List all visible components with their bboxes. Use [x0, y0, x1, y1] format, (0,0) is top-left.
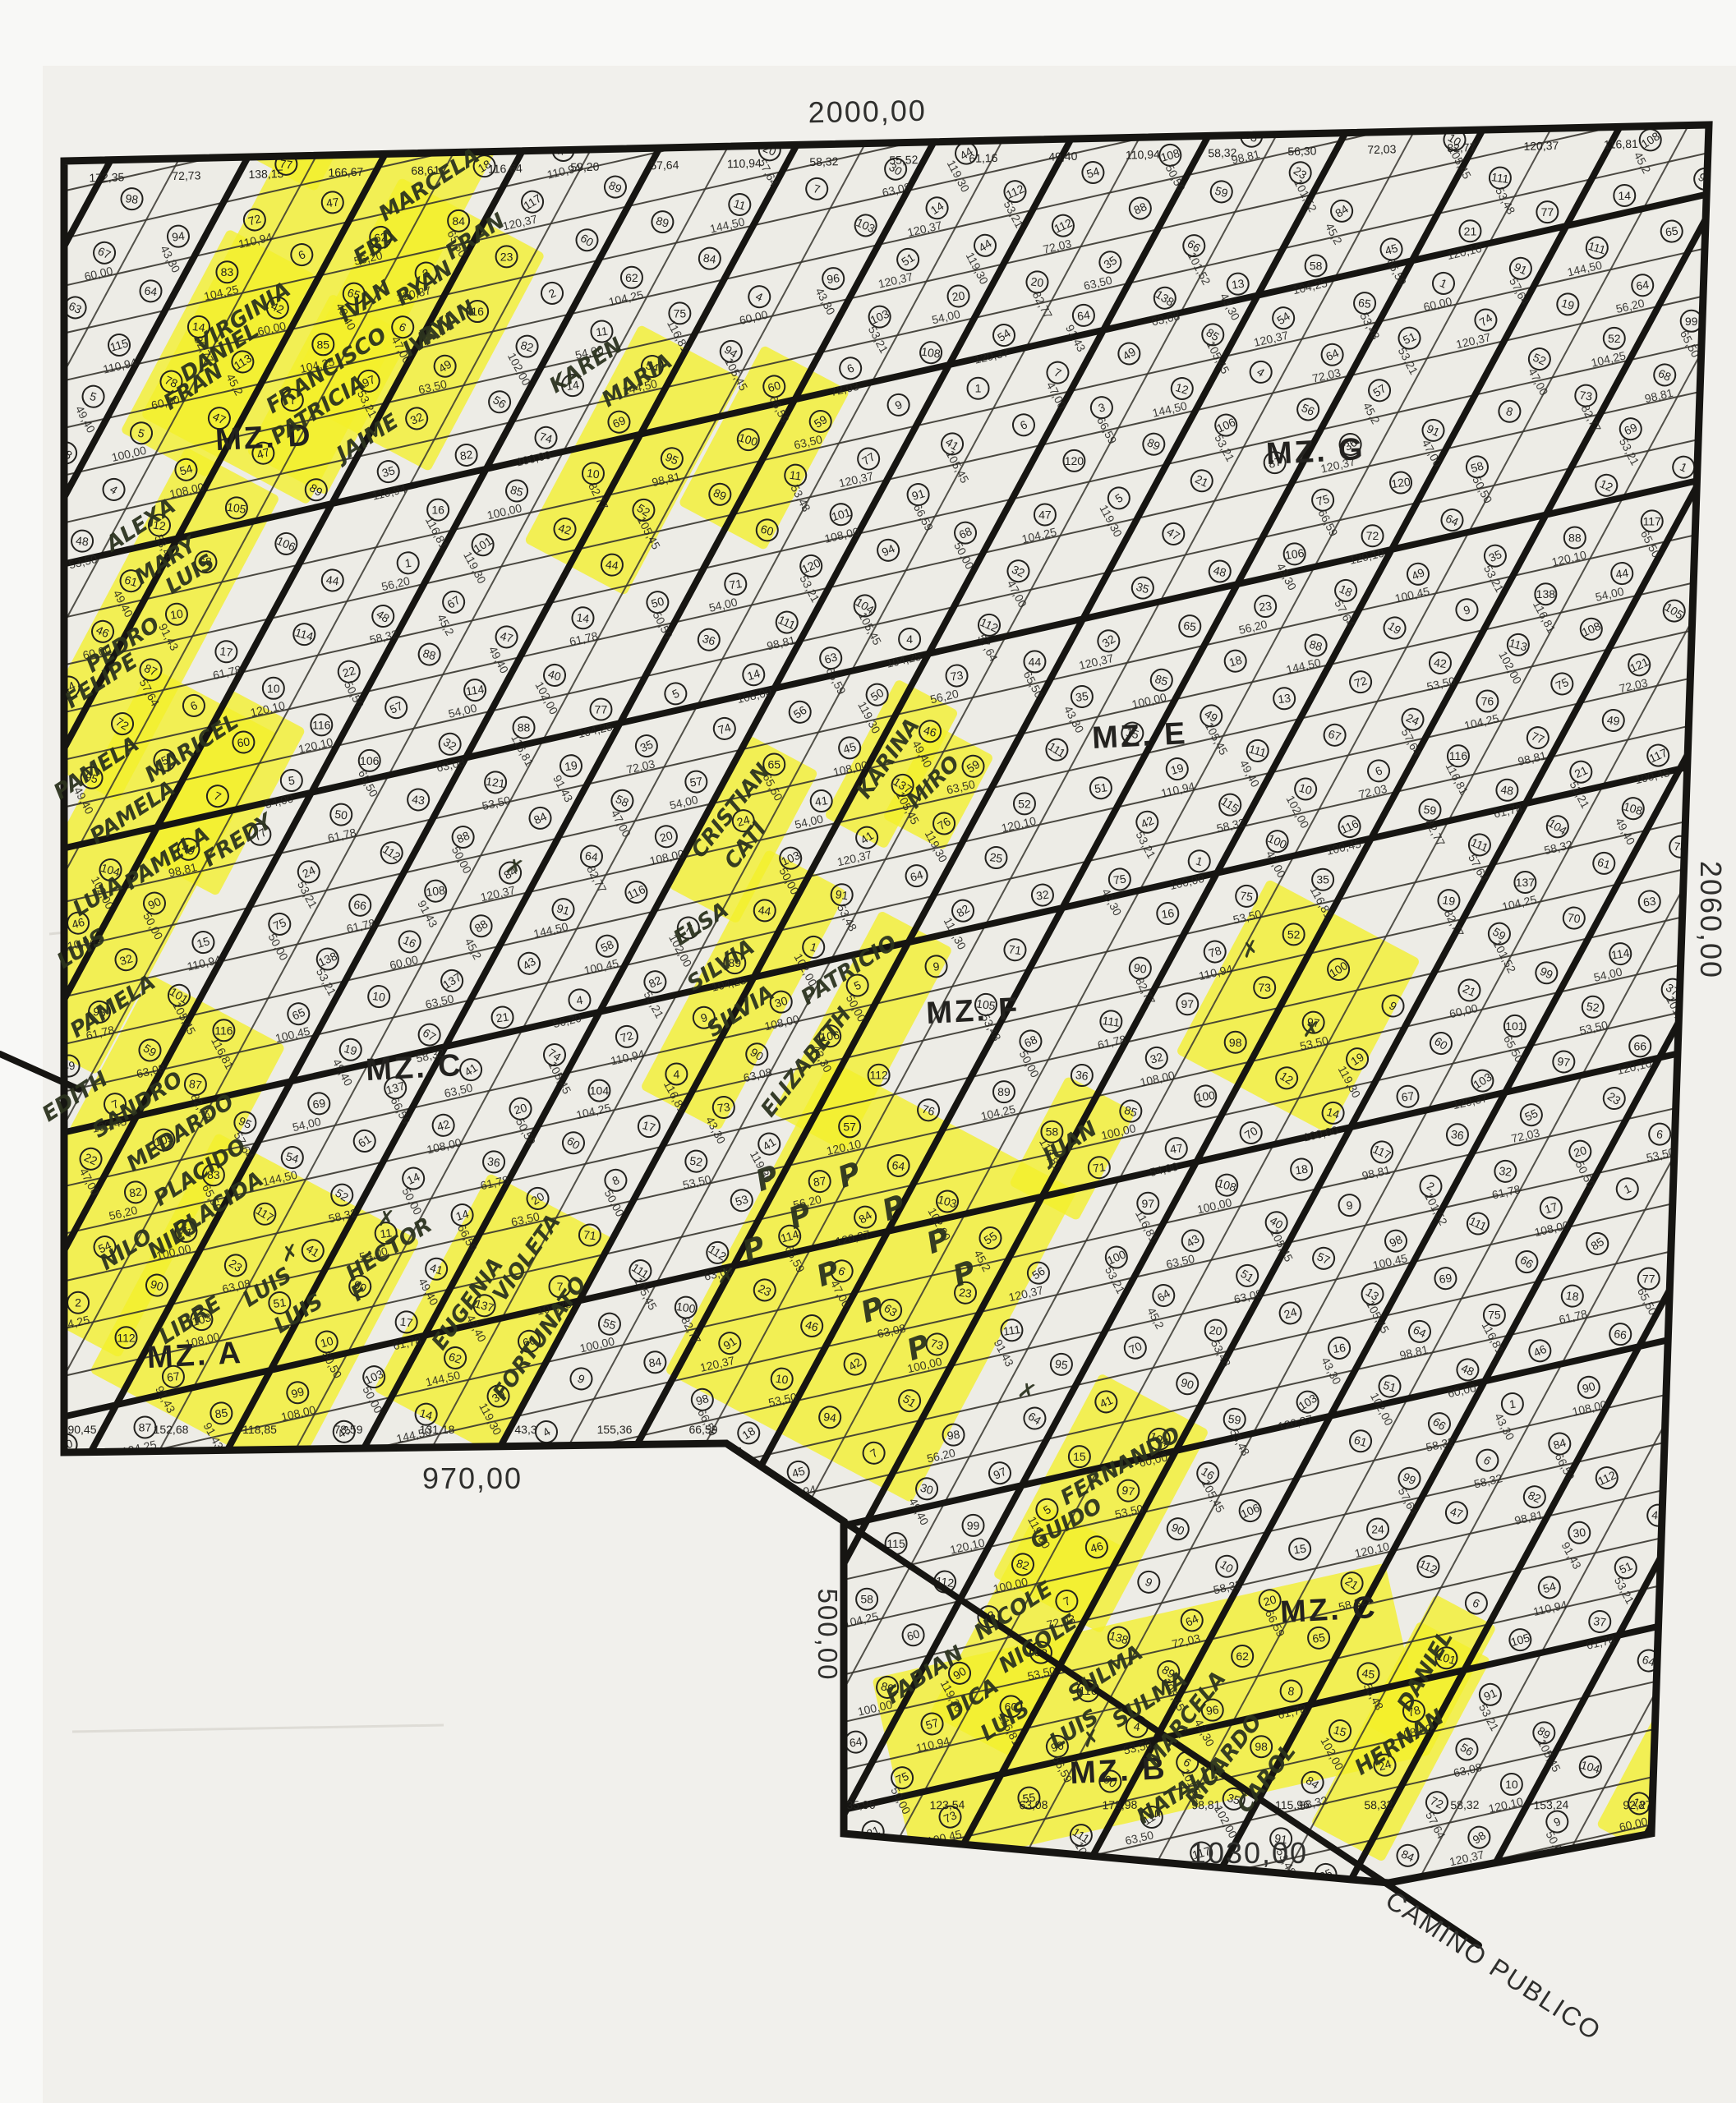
svg-text:71: 71: [728, 577, 743, 591]
svg-text:59,20: 59,20: [570, 160, 600, 174]
svg-text:4: 4: [906, 633, 913, 646]
x-mark: ✗: [377, 1207, 395, 1231]
svg-text:37: 37: [1592, 1614, 1607, 1629]
svg-text:82,77: 82,77: [1447, 140, 1476, 154]
block-label: MZ. C: [365, 1048, 463, 1088]
svg-text:10: 10: [1505, 1778, 1518, 1791]
svg-text:72,03: 72,03: [1367, 142, 1397, 156]
svg-text:73: 73: [1578, 389, 1593, 403]
svg-text:111: 111: [1490, 170, 1510, 186]
svg-text:57: 57: [689, 775, 704, 789]
svg-text:20: 20: [1030, 274, 1045, 289]
svg-text:44: 44: [1029, 655, 1042, 668]
svg-text:116: 116: [214, 1024, 233, 1037]
svg-text:84: 84: [648, 1355, 663, 1369]
svg-text:82: 82: [459, 448, 474, 462]
svg-text:65: 65: [1665, 224, 1679, 239]
svg-text:108: 108: [425, 883, 446, 899]
svg-text:106: 106: [360, 754, 380, 767]
svg-text:13: 13: [1277, 691, 1292, 706]
svg-text:110,94: 110,94: [1126, 148, 1160, 162]
svg-text:72: 72: [1366, 529, 1379, 542]
svg-text:4: 4: [673, 1067, 679, 1080]
svg-text:16: 16: [1160, 906, 1175, 921]
svg-text:66: 66: [1613, 1327, 1628, 1341]
svg-text:64: 64: [1635, 278, 1650, 292]
svg-text:137: 137: [1516, 876, 1536, 889]
x-mark: ✗: [1302, 1018, 1320, 1042]
dimension-label: 970,00: [422, 1461, 523, 1495]
svg-text:58,32: 58,32: [1450, 1798, 1480, 1812]
svg-text:96: 96: [826, 271, 840, 286]
svg-text:104: 104: [590, 1084, 610, 1098]
svg-text:114: 114: [1610, 946, 1631, 962]
svg-text:106: 106: [1284, 546, 1305, 562]
svg-text:24: 24: [1371, 1522, 1384, 1535]
svg-text:100: 100: [1195, 1088, 1217, 1104]
svg-text:101: 101: [1505, 1019, 1525, 1033]
svg-text:72,73: 72,73: [172, 168, 201, 182]
block-label: MZ. E: [1091, 716, 1188, 756]
svg-text:116,81: 116,81: [1604, 137, 1638, 151]
svg-text:66,59: 66,59: [688, 1423, 717, 1436]
svg-text:44: 44: [605, 558, 619, 573]
svg-text:44: 44: [325, 573, 340, 587]
svg-text:166,67: 166,67: [328, 165, 363, 179]
svg-text:98: 98: [1255, 1740, 1268, 1753]
svg-text:60: 60: [237, 734, 251, 749]
svg-text:85: 85: [317, 338, 330, 351]
svg-text:20: 20: [951, 288, 966, 303]
svg-text:98: 98: [125, 191, 140, 206]
svg-text:155,36: 155,36: [597, 1423, 633, 1436]
svg-text:75: 75: [1112, 872, 1127, 886]
svg-text:61,16: 61,16: [969, 151, 998, 165]
svg-text:36: 36: [1450, 1127, 1465, 1142]
svg-text:85: 85: [214, 1406, 229, 1420]
dimension-label: 2060,00: [1694, 861, 1728, 979]
svg-text:18: 18: [1294, 1162, 1309, 1177]
svg-text:58,32: 58,32: [1208, 146, 1237, 160]
svg-text:99: 99: [1685, 315, 1698, 328]
svg-text:120: 120: [1065, 454, 1084, 467]
svg-text:70: 70: [1567, 911, 1582, 926]
svg-text:65: 65: [1182, 619, 1197, 633]
svg-text:10: 10: [169, 607, 184, 622]
svg-text:94: 94: [171, 229, 186, 244]
svg-text:90,45: 90,45: [67, 1423, 96, 1436]
svg-text:71: 71: [1008, 942, 1023, 957]
svg-text:92,27: 92,27: [1623, 1798, 1652, 1812]
svg-text:105: 105: [226, 500, 247, 516]
svg-text:116: 116: [312, 718, 331, 731]
svg-text:89: 89: [997, 1085, 1011, 1098]
svg-text:1: 1: [975, 382, 982, 395]
svg-text:14: 14: [1618, 189, 1631, 202]
svg-text:55,52: 55,52: [889, 153, 919, 167]
svg-text:152,68: 152,68: [154, 1423, 189, 1436]
svg-text:11: 11: [789, 468, 803, 483]
svg-text:17: 17: [399, 1314, 414, 1329]
svg-text:73: 73: [1258, 981, 1271, 994]
svg-text:77: 77: [1642, 1272, 1655, 1285]
svg-text:16: 16: [1332, 1341, 1347, 1355]
svg-text:98: 98: [1229, 1036, 1242, 1049]
svg-text:65: 65: [1311, 1631, 1326, 1645]
svg-text:56,30: 56,30: [1287, 144, 1317, 158]
svg-text:43,3: 43,3: [514, 1423, 536, 1436]
svg-text:91: 91: [835, 887, 850, 902]
svg-text:50: 50: [334, 808, 348, 822]
svg-text:69: 69: [1439, 1271, 1453, 1286]
svg-text:111: 111: [1102, 1014, 1121, 1029]
svg-text:47: 47: [1038, 508, 1052, 522]
svg-text:78,59: 78,59: [334, 1423, 362, 1436]
svg-text:35: 35: [1075, 689, 1089, 704]
svg-text:66: 66: [352, 898, 367, 913]
svg-text:15: 15: [1073, 1450, 1086, 1463]
scan-margin-left: [0, 0, 43, 2103]
svg-text:63,08: 63,08: [1019, 1798, 1048, 1812]
svg-text:117: 117: [1643, 514, 1662, 527]
svg-text:88: 88: [1568, 532, 1582, 545]
svg-text:62: 62: [1236, 1650, 1249, 1663]
svg-text:69: 69: [311, 1096, 326, 1111]
svg-text:116,64: 116,64: [488, 162, 523, 176]
svg-text:138: 138: [1536, 587, 1556, 601]
svg-text:71: 71: [583, 1227, 597, 1242]
svg-text:36: 36: [486, 1154, 501, 1169]
block-label: MZ. C: [1279, 1590, 1378, 1630]
svg-text:17: 17: [219, 644, 234, 659]
svg-text:44: 44: [1614, 566, 1629, 581]
svg-text:11: 11: [595, 324, 609, 339]
svg-text:30: 30: [1572, 1525, 1586, 1540]
svg-text:75: 75: [1239, 889, 1254, 904]
svg-text:97: 97: [1181, 997, 1194, 1010]
svg-text:58,32: 58,32: [1364, 1798, 1393, 1812]
svg-text:71: 71: [1092, 1160, 1107, 1175]
svg-text:47: 47: [325, 195, 340, 209]
svg-text:87: 87: [813, 1174, 827, 1189]
svg-text:131,18: 131,18: [420, 1423, 455, 1436]
svg-text:108: 108: [920, 345, 942, 361]
svg-text:112: 112: [117, 1331, 136, 1344]
svg-text:58: 58: [860, 1593, 873, 1606]
block-label: MZ. G: [1265, 432, 1366, 472]
svg-text:19: 19: [564, 758, 578, 773]
svg-text:153,24: 153,24: [1533, 1798, 1568, 1812]
dimension-label: 1030,00: [1190, 1836, 1308, 1870]
svg-text:76: 76: [1481, 695, 1494, 708]
svg-text:99: 99: [967, 1519, 980, 1532]
svg-text:21: 21: [1464, 224, 1477, 237]
svg-text:48: 48: [1500, 783, 1515, 798]
svg-text:64: 64: [849, 1735, 863, 1750]
svg-text:13: 13: [1231, 277, 1246, 292]
svg-text:42: 42: [1433, 656, 1448, 670]
svg-text:52: 52: [689, 1154, 704, 1169]
svg-text:15: 15: [1292, 1542, 1307, 1557]
svg-text:52: 52: [1608, 332, 1621, 345]
svg-text:95: 95: [1054, 1357, 1069, 1372]
svg-text:23: 23: [1258, 599, 1273, 614]
svg-text:23: 23: [500, 250, 513, 263]
scanned-plot-map-page: Plano de lotes — manzanas MZ. A a MZ. G …: [0, 0, 1736, 2103]
svg-text:52: 52: [1287, 927, 1301, 941]
svg-text:52: 52: [1586, 1000, 1600, 1015]
svg-text:84: 84: [452, 214, 465, 228]
svg-text:110,94: 110,94: [727, 156, 762, 170]
svg-text:62: 62: [625, 271, 638, 284]
dimension-label: 2000,00: [808, 94, 927, 130]
svg-text:32: 32: [1499, 1164, 1513, 1179]
svg-text:44: 44: [757, 903, 772, 918]
svg-text:41: 41: [814, 794, 829, 808]
svg-text:65: 65: [1357, 296, 1372, 311]
svg-text:120,37: 120,37: [1523, 139, 1559, 153]
svg-text:172,35: 172,35: [89, 170, 124, 184]
svg-text:14: 14: [576, 610, 591, 625]
svg-text:111: 111: [1002, 1323, 1022, 1338]
svg-text:97: 97: [1121, 1484, 1135, 1498]
dimension-label: 500,00: [813, 1589, 843, 1682]
svg-text:45: 45: [1361, 1666, 1376, 1681]
svg-text:25: 25: [989, 850, 1004, 865]
svg-text:10: 10: [586, 466, 601, 481]
svg-text:121: 121: [485, 775, 506, 790]
svg-text:115: 115: [886, 1537, 905, 1550]
svg-text:57: 57: [843, 1120, 856, 1133]
svg-text:94: 94: [822, 1410, 837, 1424]
svg-text:64: 64: [584, 849, 599, 863]
block-label: MZ. A: [146, 1336, 244, 1375]
svg-text:114: 114: [465, 683, 486, 698]
svg-text:120: 120: [1390, 475, 1411, 490]
svg-text:63: 63: [1642, 894, 1657, 909]
svg-text:10: 10: [775, 1372, 790, 1387]
svg-text:59: 59: [1423, 803, 1438, 817]
x-mark: ✗: [717, 1264, 735, 1289]
svg-text:20: 20: [1209, 1323, 1223, 1338]
svg-text:116: 116: [1449, 749, 1468, 762]
svg-text:66: 66: [1633, 1039, 1646, 1052]
svg-text:49,40: 49,40: [1048, 150, 1078, 163]
svg-text:64: 64: [891, 1158, 906, 1173]
svg-text:43: 43: [411, 792, 426, 807]
svg-text:32: 32: [1035, 888, 1050, 903]
svg-text:59: 59: [1227, 1412, 1242, 1427]
svg-text:64: 64: [1076, 308, 1091, 323]
svg-text:87: 87: [139, 1420, 152, 1433]
block-label: MZ. F: [925, 992, 1020, 1031]
svg-text:10: 10: [267, 682, 280, 695]
svg-text:77: 77: [1541, 205, 1554, 219]
svg-text:77: 77: [595, 703, 608, 716]
svg-text:83: 83: [221, 265, 234, 278]
svg-text:73: 73: [950, 669, 965, 683]
svg-text:52: 52: [1018, 797, 1031, 810]
svg-text:84: 84: [702, 251, 717, 266]
svg-text:100: 100: [675, 1300, 697, 1315]
svg-text:18: 18: [1565, 1289, 1580, 1304]
svg-text:64: 64: [144, 283, 159, 298]
plot-map-svg: 98776760,009443,3072110,94471843110,9463…: [0, 0, 1736, 2103]
svg-text:98: 98: [946, 1428, 961, 1443]
scan-margin-top: [0, 0, 1736, 66]
svg-text:82: 82: [128, 1185, 143, 1199]
svg-text:138,15: 138,15: [248, 167, 283, 181]
svg-text:73: 73: [716, 1100, 731, 1115]
svg-text:123,54: 123,54: [929, 1798, 965, 1812]
svg-text:57,64: 57,64: [650, 158, 679, 172]
svg-text:2: 2: [75, 1296, 81, 1309]
svg-text:10: 10: [371, 989, 386, 1004]
svg-text:47: 47: [1169, 1141, 1184, 1156]
svg-text:118,85: 118,85: [242, 1423, 277, 1436]
svg-text:36: 36: [1075, 1068, 1089, 1083]
svg-text:90: 90: [1133, 961, 1148, 976]
svg-text:65: 65: [767, 757, 781, 771]
svg-text:19: 19: [1442, 893, 1457, 908]
svg-text:58,32: 58,32: [809, 154, 839, 168]
svg-text:21: 21: [495, 1010, 510, 1024]
svg-text:49: 49: [1606, 713, 1621, 728]
svg-text:112: 112: [869, 1069, 888, 1082]
svg-text:87: 87: [188, 1077, 203, 1092]
svg-text:97: 97: [1556, 1054, 1571, 1069]
svg-text:51: 51: [1094, 780, 1108, 795]
svg-text:35,96: 35,96: [846, 1798, 876, 1812]
svg-text:58: 58: [1310, 260, 1323, 273]
svg-text:48: 48: [75, 534, 90, 549]
svg-text:67: 67: [1401, 1089, 1416, 1104]
